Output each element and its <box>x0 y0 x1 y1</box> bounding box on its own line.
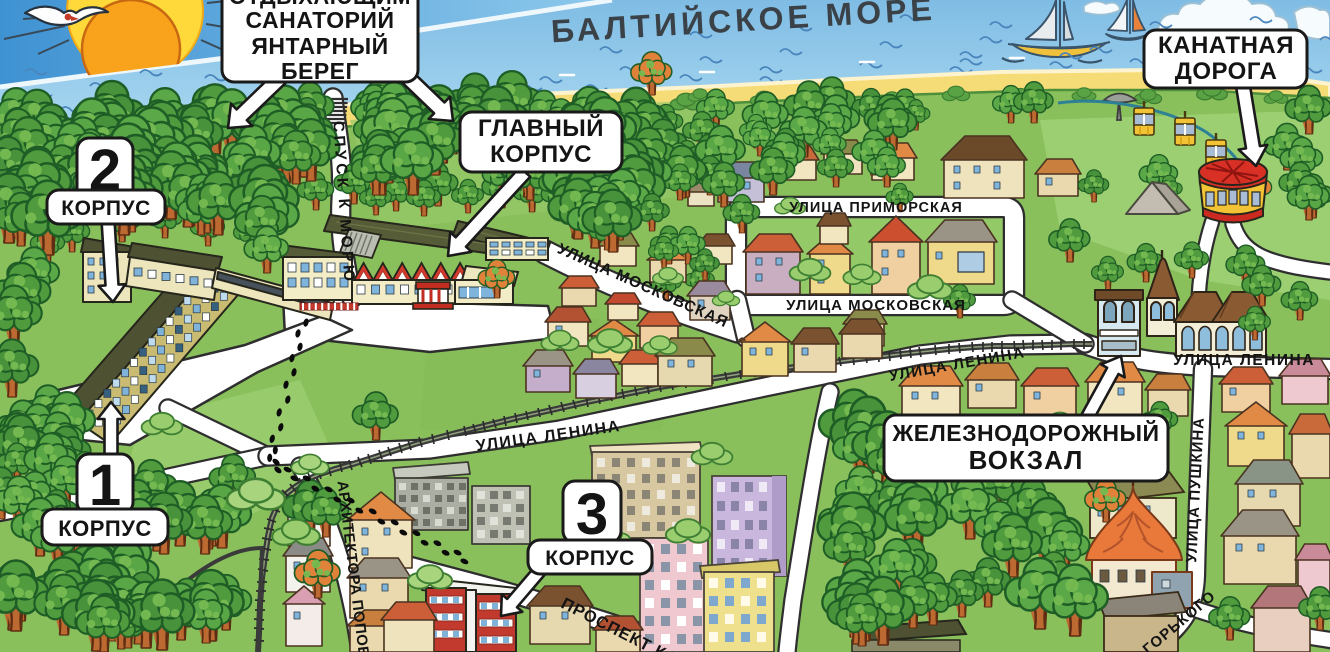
svg-text:ЯНТАРНЫЙ: ЯНТАРНЫЙ <box>251 32 388 59</box>
svg-text:ДОРОГА: ДОРОГА <box>1175 58 1278 85</box>
svg-text:УЛИЦА МОСКОВСКАЯ: УЛИЦА МОСКОВСКАЯ <box>786 297 966 314</box>
svg-text:БЕРЕГ: БЕРЕГ <box>281 58 359 84</box>
svg-text:ЖЕЛЕЗНОДОРОЖНЫЙ: ЖЕЛЕЗНОДОРОЖНЫЙ <box>891 419 1159 446</box>
svg-text:КОРПУС: КОРПУС <box>545 547 634 570</box>
svg-text:КОРПУС: КОРПУС <box>490 141 592 168</box>
svg-text:УЛИЦА ЛЕНИНА: УЛИЦА ЛЕНИНА <box>1173 352 1315 369</box>
svg-text:КАНАТНАЯ: КАНАТНАЯ <box>1158 32 1294 59</box>
svg-text:УЛИЦА ПРИМОРСКАЯ: УЛИЦА ПРИМОРСКАЯ <box>789 200 963 216</box>
svg-text:САНАТОРИЙ: САНАТОРИЙ <box>246 6 395 33</box>
svg-text:КОРПУС: КОРПУС <box>61 197 150 220</box>
svg-text:ВОКЗАЛ: ВОКЗАЛ <box>969 445 1084 475</box>
svg-text:3: 3 <box>576 482 608 547</box>
svg-text:ГЛАВНЫЙ: ГЛАВНЫЙ <box>478 114 604 142</box>
svg-text:КОРПУС: КОРПУС <box>58 516 152 541</box>
